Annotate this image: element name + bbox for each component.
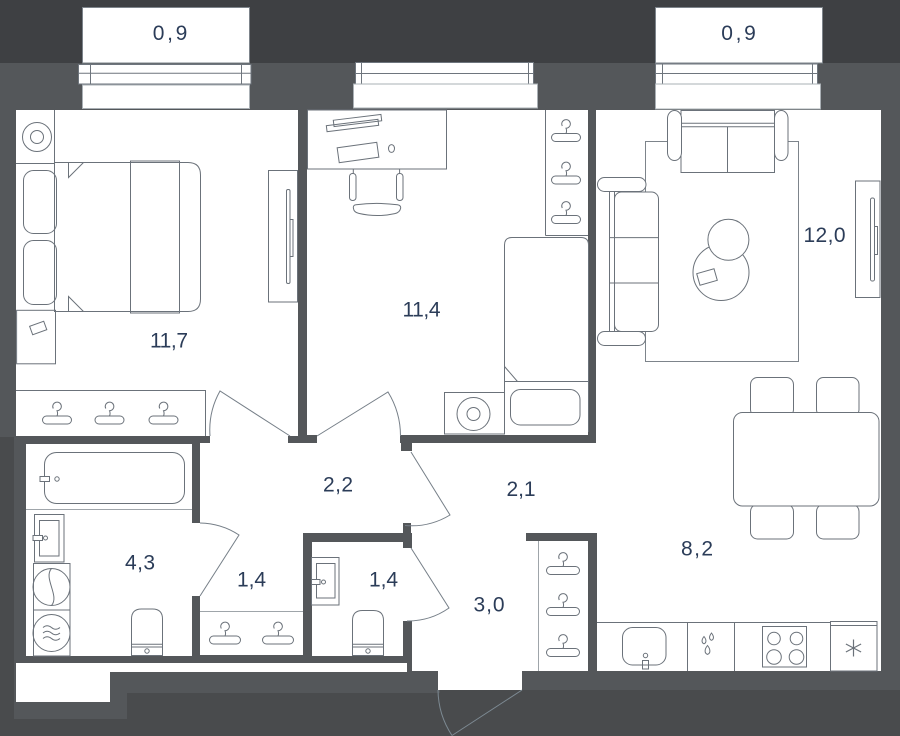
svg-text:3,0: 3,0 [474, 594, 505, 617]
svg-text:12,0: 12,0 [804, 224, 846, 247]
svg-text:4,3: 4,3 [125, 552, 155, 575]
svg-text:1,4: 1,4 [237, 569, 266, 592]
svg-text:2,1: 2,1 [507, 478, 536, 501]
svg-text:0,9: 0,9 [721, 22, 756, 45]
svg-text:2,2: 2,2 [323, 474, 353, 497]
svg-text:1,4: 1,4 [369, 569, 398, 592]
svg-text:11,7: 11,7 [150, 330, 188, 353]
svg-text:8,2: 8,2 [681, 538, 713, 561]
svg-text:11,4: 11,4 [403, 299, 441, 322]
svg-text:0,9: 0,9 [153, 22, 188, 45]
